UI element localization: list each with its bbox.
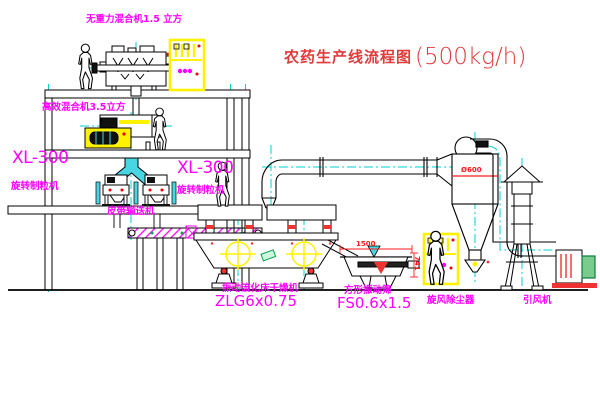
dim-cyclone-diameter: Ø600 xyxy=(461,167,482,174)
label-belt-conveyor: 皮带输送机 xyxy=(107,207,155,217)
dim-screen-height: 741 xyxy=(413,256,420,271)
control-cabinet-upper xyxy=(170,40,204,90)
induced-draft-fan xyxy=(552,250,597,288)
label-high-speed-mixer: 高效混合机3.5立方 xyxy=(42,103,125,113)
label-granulator-right-name: 旋转制粒机 xyxy=(177,186,225,196)
label-screen-model: FS0.6x1.5 xyxy=(337,296,411,311)
process-flow-diagram: 农药生产线流程图 (500kg/h) 无重力混合机1.5 立方 高效混合机3.5… xyxy=(0,0,600,403)
person-roof xyxy=(79,44,93,88)
title-text: 农药生产线流程图 xyxy=(284,46,412,70)
high-speed-mixer xyxy=(85,115,162,150)
label-zero-gravity-mixer: 无重力混合机1.5 立方 xyxy=(86,15,182,25)
label-cyclone: 旋风除尘器 xyxy=(427,296,475,306)
label-granulator-left-model: XL-300 xyxy=(12,150,68,167)
title-capacity: (500kg/h) xyxy=(415,44,526,70)
label-granulator-right-model: XL-300 xyxy=(177,160,233,177)
granulator-left xyxy=(102,175,130,207)
label-granulator-left-name: 旋转制粒机 xyxy=(11,182,59,192)
dim-screen-length: 1500 xyxy=(356,241,375,248)
diagram-title: 农药生产线流程图 (500kg/h) xyxy=(284,44,526,70)
granulator-right xyxy=(142,175,170,207)
label-fan: 引风机 xyxy=(523,296,552,306)
label-dryer-model: ZLG6x0.75 xyxy=(215,294,297,309)
fluid-bed-dryer xyxy=(194,205,338,288)
exhaust-duct xyxy=(262,154,452,208)
